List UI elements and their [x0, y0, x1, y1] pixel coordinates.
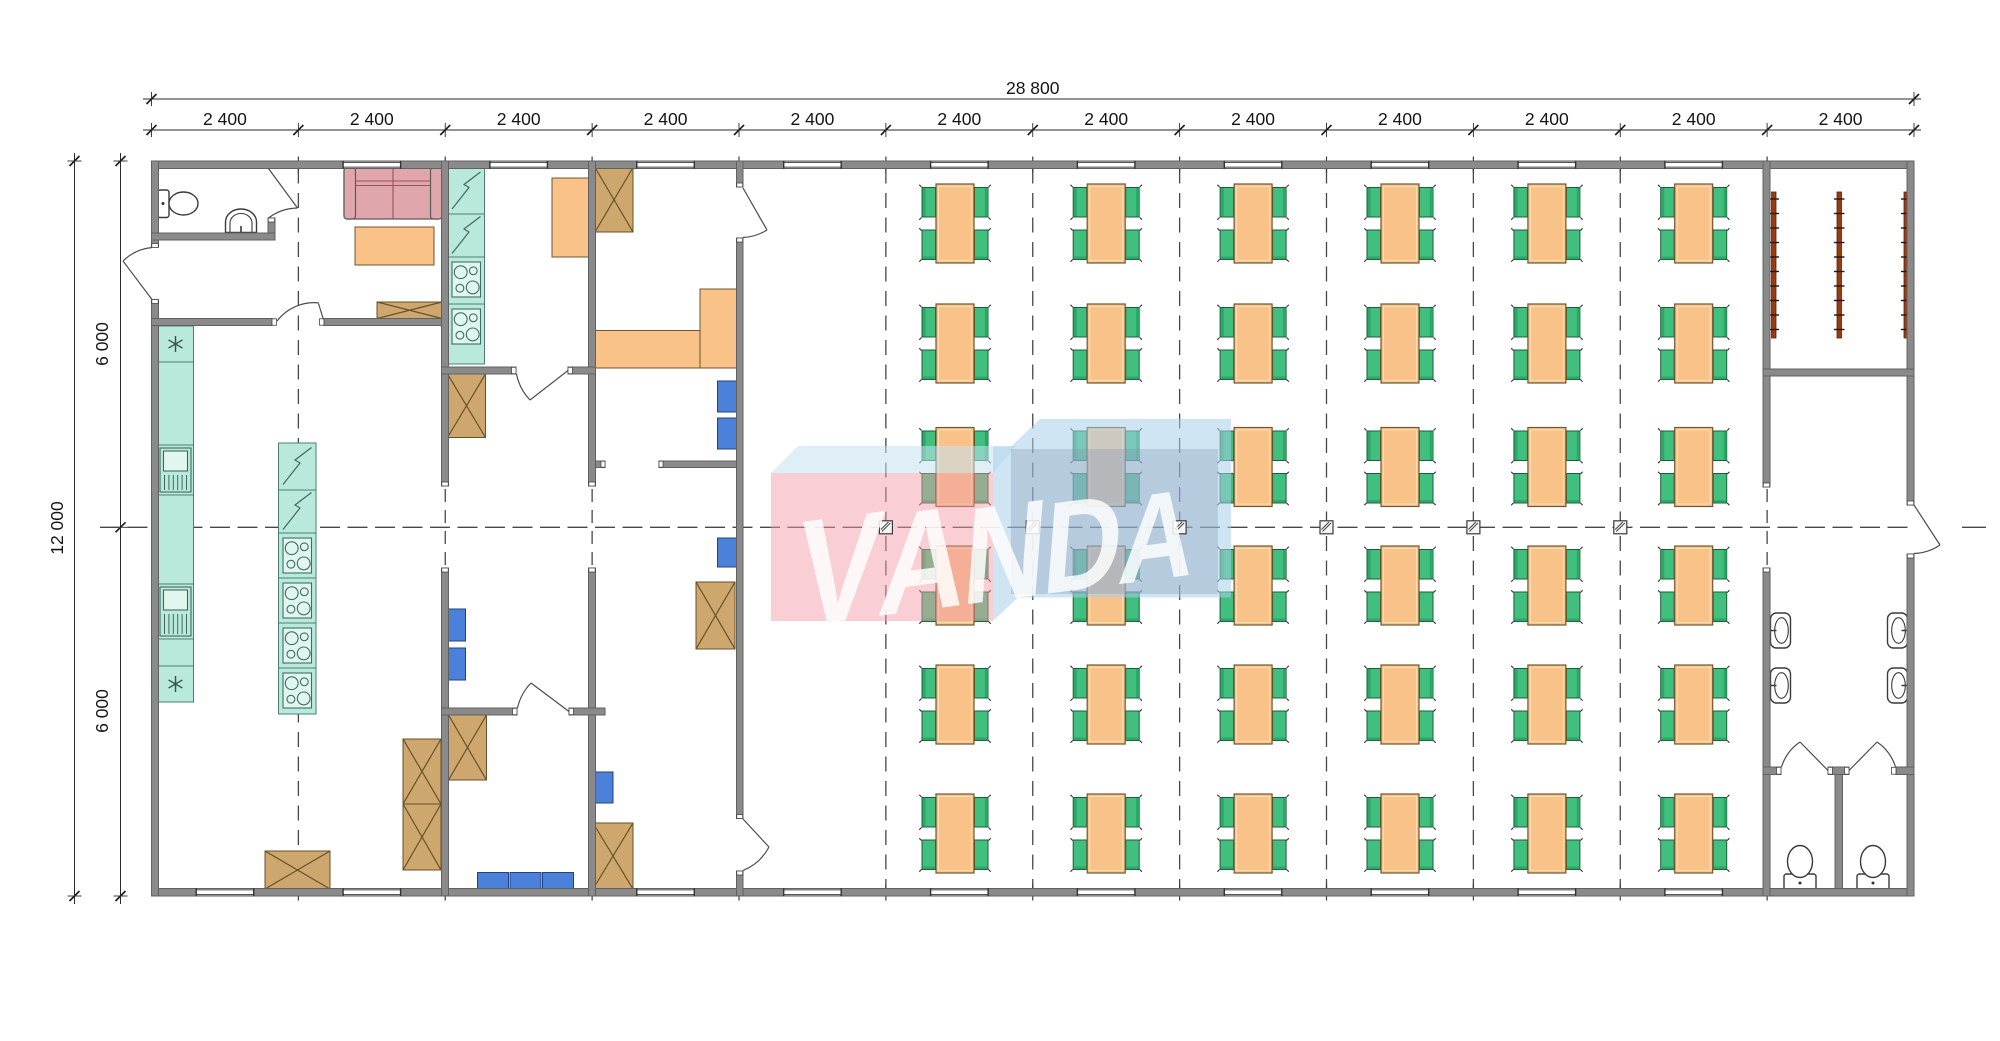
svg-text:2 400: 2 400: [644, 109, 688, 129]
svg-text:2 400: 2 400: [1819, 109, 1863, 129]
svg-text:2 400: 2 400: [497, 109, 541, 129]
svg-text:2 400: 2 400: [1231, 109, 1275, 129]
svg-text:12 000: 12 000: [47, 501, 67, 555]
svg-text:2 400: 2 400: [350, 109, 394, 129]
svg-text:2 400: 2 400: [1672, 109, 1716, 129]
svg-text:2 400: 2 400: [791, 109, 835, 129]
svg-text:28 800: 28 800: [1006, 78, 1060, 98]
svg-text:2 400: 2 400: [1084, 109, 1128, 129]
svg-text:2 400: 2 400: [203, 109, 247, 129]
svg-text:2 400: 2 400: [1378, 109, 1422, 129]
svg-text:6 000: 6 000: [92, 689, 112, 733]
svg-text:2 400: 2 400: [1525, 109, 1569, 129]
svg-text:2 400: 2 400: [937, 109, 981, 129]
svg-text:6 000: 6 000: [92, 322, 112, 366]
